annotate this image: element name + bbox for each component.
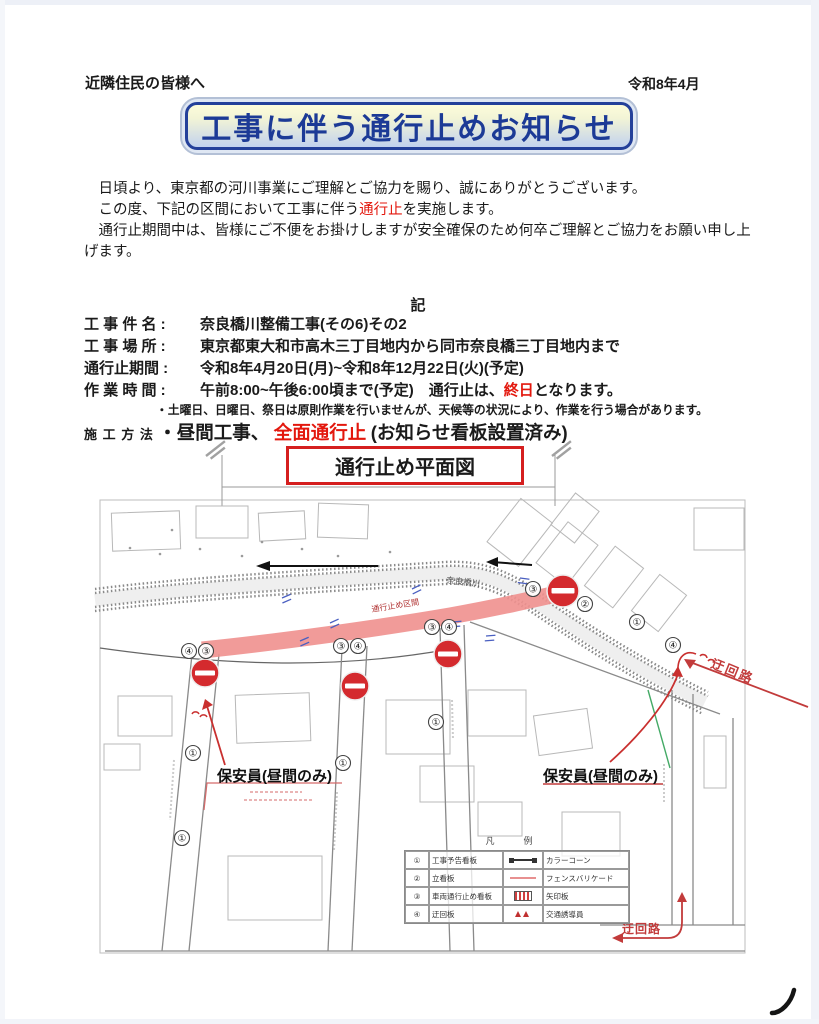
marker-label: ④ (445, 623, 454, 634)
no-entry-sign (547, 575, 579, 607)
legend-desc: カラーコーン (543, 851, 629, 869)
marker-label: ① (178, 834, 187, 845)
no-entry-sign (341, 672, 369, 700)
legend-symbol-fence (503, 869, 543, 887)
guard-label-right: 保安員(昼間のみ) (543, 765, 658, 786)
guard-zone-lines (204, 783, 663, 810)
marker-label: ④ (185, 647, 194, 658)
detour-label-right: 迂回路 (709, 656, 756, 687)
legend-num: ① (405, 851, 429, 869)
marker-label: ③ (337, 642, 346, 653)
legend-symbol-arrow-board (503, 887, 543, 905)
pen-mark (772, 990, 794, 1013)
legend-name: 車両通行止め看板 (429, 887, 503, 905)
map-title-box: 通行止め平面図 (286, 446, 524, 485)
map-vegetation-dots (129, 529, 392, 558)
legend-desc: 矢印板 (543, 887, 629, 905)
guard-label-left: 保安員(昼間のみ) (217, 765, 332, 786)
river (95, 562, 708, 714)
legend-name: 工事予告看板 (429, 851, 503, 869)
marker-label: ④ (669, 641, 678, 652)
closed-section-label: 通行止め区間 (371, 597, 420, 614)
legend-name: 迂回板 (429, 905, 503, 923)
no-entry-sign (191, 659, 219, 687)
legend-desc: フェンスバリケード (543, 869, 629, 887)
marker-label: ① (432, 718, 441, 729)
marker-label: ① (339, 759, 348, 770)
closed-road-section (202, 592, 565, 650)
marker-label: ① (633, 618, 642, 629)
numbered-markers: ④ ③ ③ ④ ③ ④ ③ ② ① ④ ① ① ① ① (175, 582, 681, 846)
legend-title: 凡 例 (404, 834, 624, 847)
legend-table: ① 工事予告看板 カラーコーン ② 立看板 フェンスバリケード ③ 車両通行止め… (404, 850, 630, 924)
legend-num: ② (405, 869, 429, 887)
marker-label: ② (581, 600, 590, 611)
marker-label: ③ (428, 623, 437, 634)
no-entry-sign (434, 640, 462, 668)
notice-document: 近隣住民の皆様へ 令和8年4月 工事に伴う通行止めお知らせ 日頃より、東京都の河… (0, 0, 819, 1024)
legend-symbol-guard-cones (503, 905, 543, 923)
legend-num: ④ (405, 905, 429, 923)
marker-label: ④ (354, 642, 363, 653)
legend-desc: 交通誘導員 (543, 905, 629, 923)
legend-symbol-colorcone-line (503, 851, 543, 869)
marker-label: ③ (202, 647, 211, 658)
legend-num: ③ (405, 887, 429, 905)
river-name-label: 奈良橋川 (446, 575, 481, 589)
legend-name: 立看板 (429, 869, 503, 887)
marker-label: ③ (529, 585, 538, 596)
marker-label: ① (189, 749, 198, 760)
green-line (648, 690, 670, 768)
